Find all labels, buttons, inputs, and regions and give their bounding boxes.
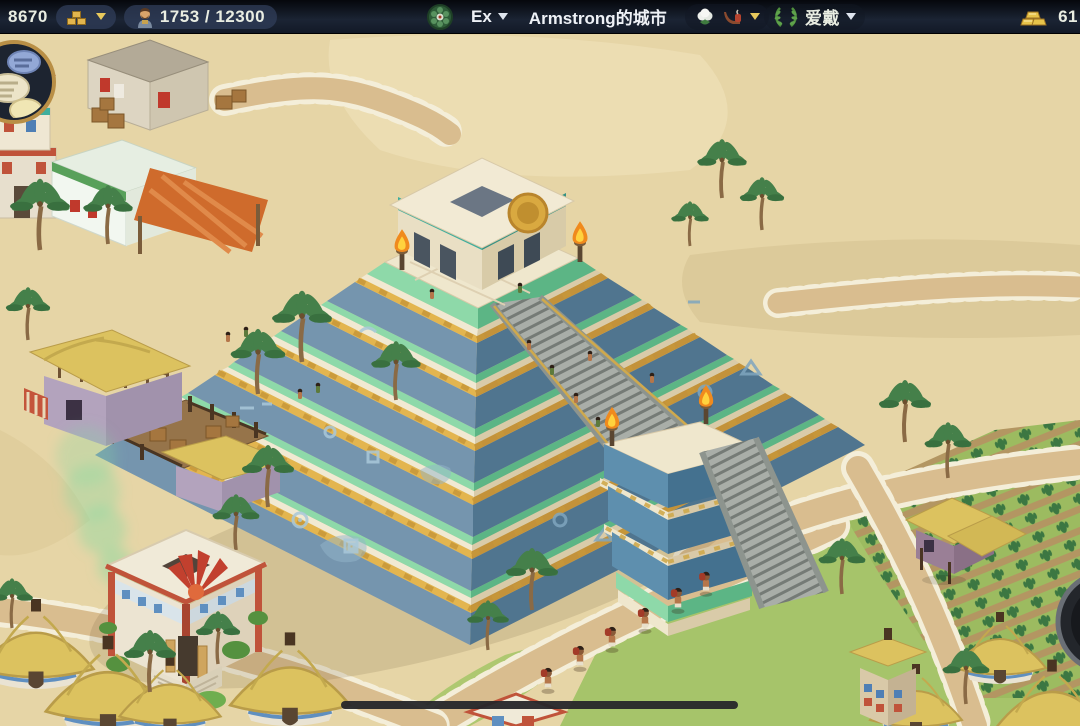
- citizen-avatar-icon: [136, 6, 154, 28]
- population-panel[interactable]: 1753 / 12300: [124, 5, 277, 29]
- city-level-label: Ex: [471, 7, 492, 27]
- city-crest-icon: [426, 3, 454, 31]
- city-scene: [0, 0, 1080, 726]
- top-hud: 8670 1753 / 12300: [0, 0, 1080, 34]
- home-indicator[interactable]: [341, 701, 738, 709]
- coin-balance: 8670: [8, 7, 48, 27]
- city-name: Armstrong的城市: [529, 4, 667, 29]
- chevron-down-icon: [96, 13, 106, 20]
- laurel-wreath-icon: [773, 5, 799, 29]
- gold-count: 61: [1058, 7, 1078, 27]
- city-level-dropdown[interactable]: Ex: [462, 4, 517, 30]
- cotton-icon: [694, 6, 716, 28]
- game-viewport: 8670 1753 / 12300: [0, 0, 1080, 726]
- gold-bars-icon: [1020, 7, 1050, 27]
- reputation-dropdown[interactable]: 爱戴: [764, 4, 865, 30]
- chevron-down-icon: [750, 13, 760, 20]
- chevron-down-icon: [846, 13, 856, 20]
- population-count: 1753 / 12300: [160, 7, 265, 27]
- building-blocks-icon: [66, 8, 90, 25]
- pipe-icon: [722, 6, 744, 28]
- chevron-down-icon: [498, 13, 508, 20]
- goods-dropdown[interactable]: [685, 4, 769, 30]
- construction-menu-button[interactable]: [56, 5, 116, 29]
- reputation-label: 爱戴: [805, 4, 840, 29]
